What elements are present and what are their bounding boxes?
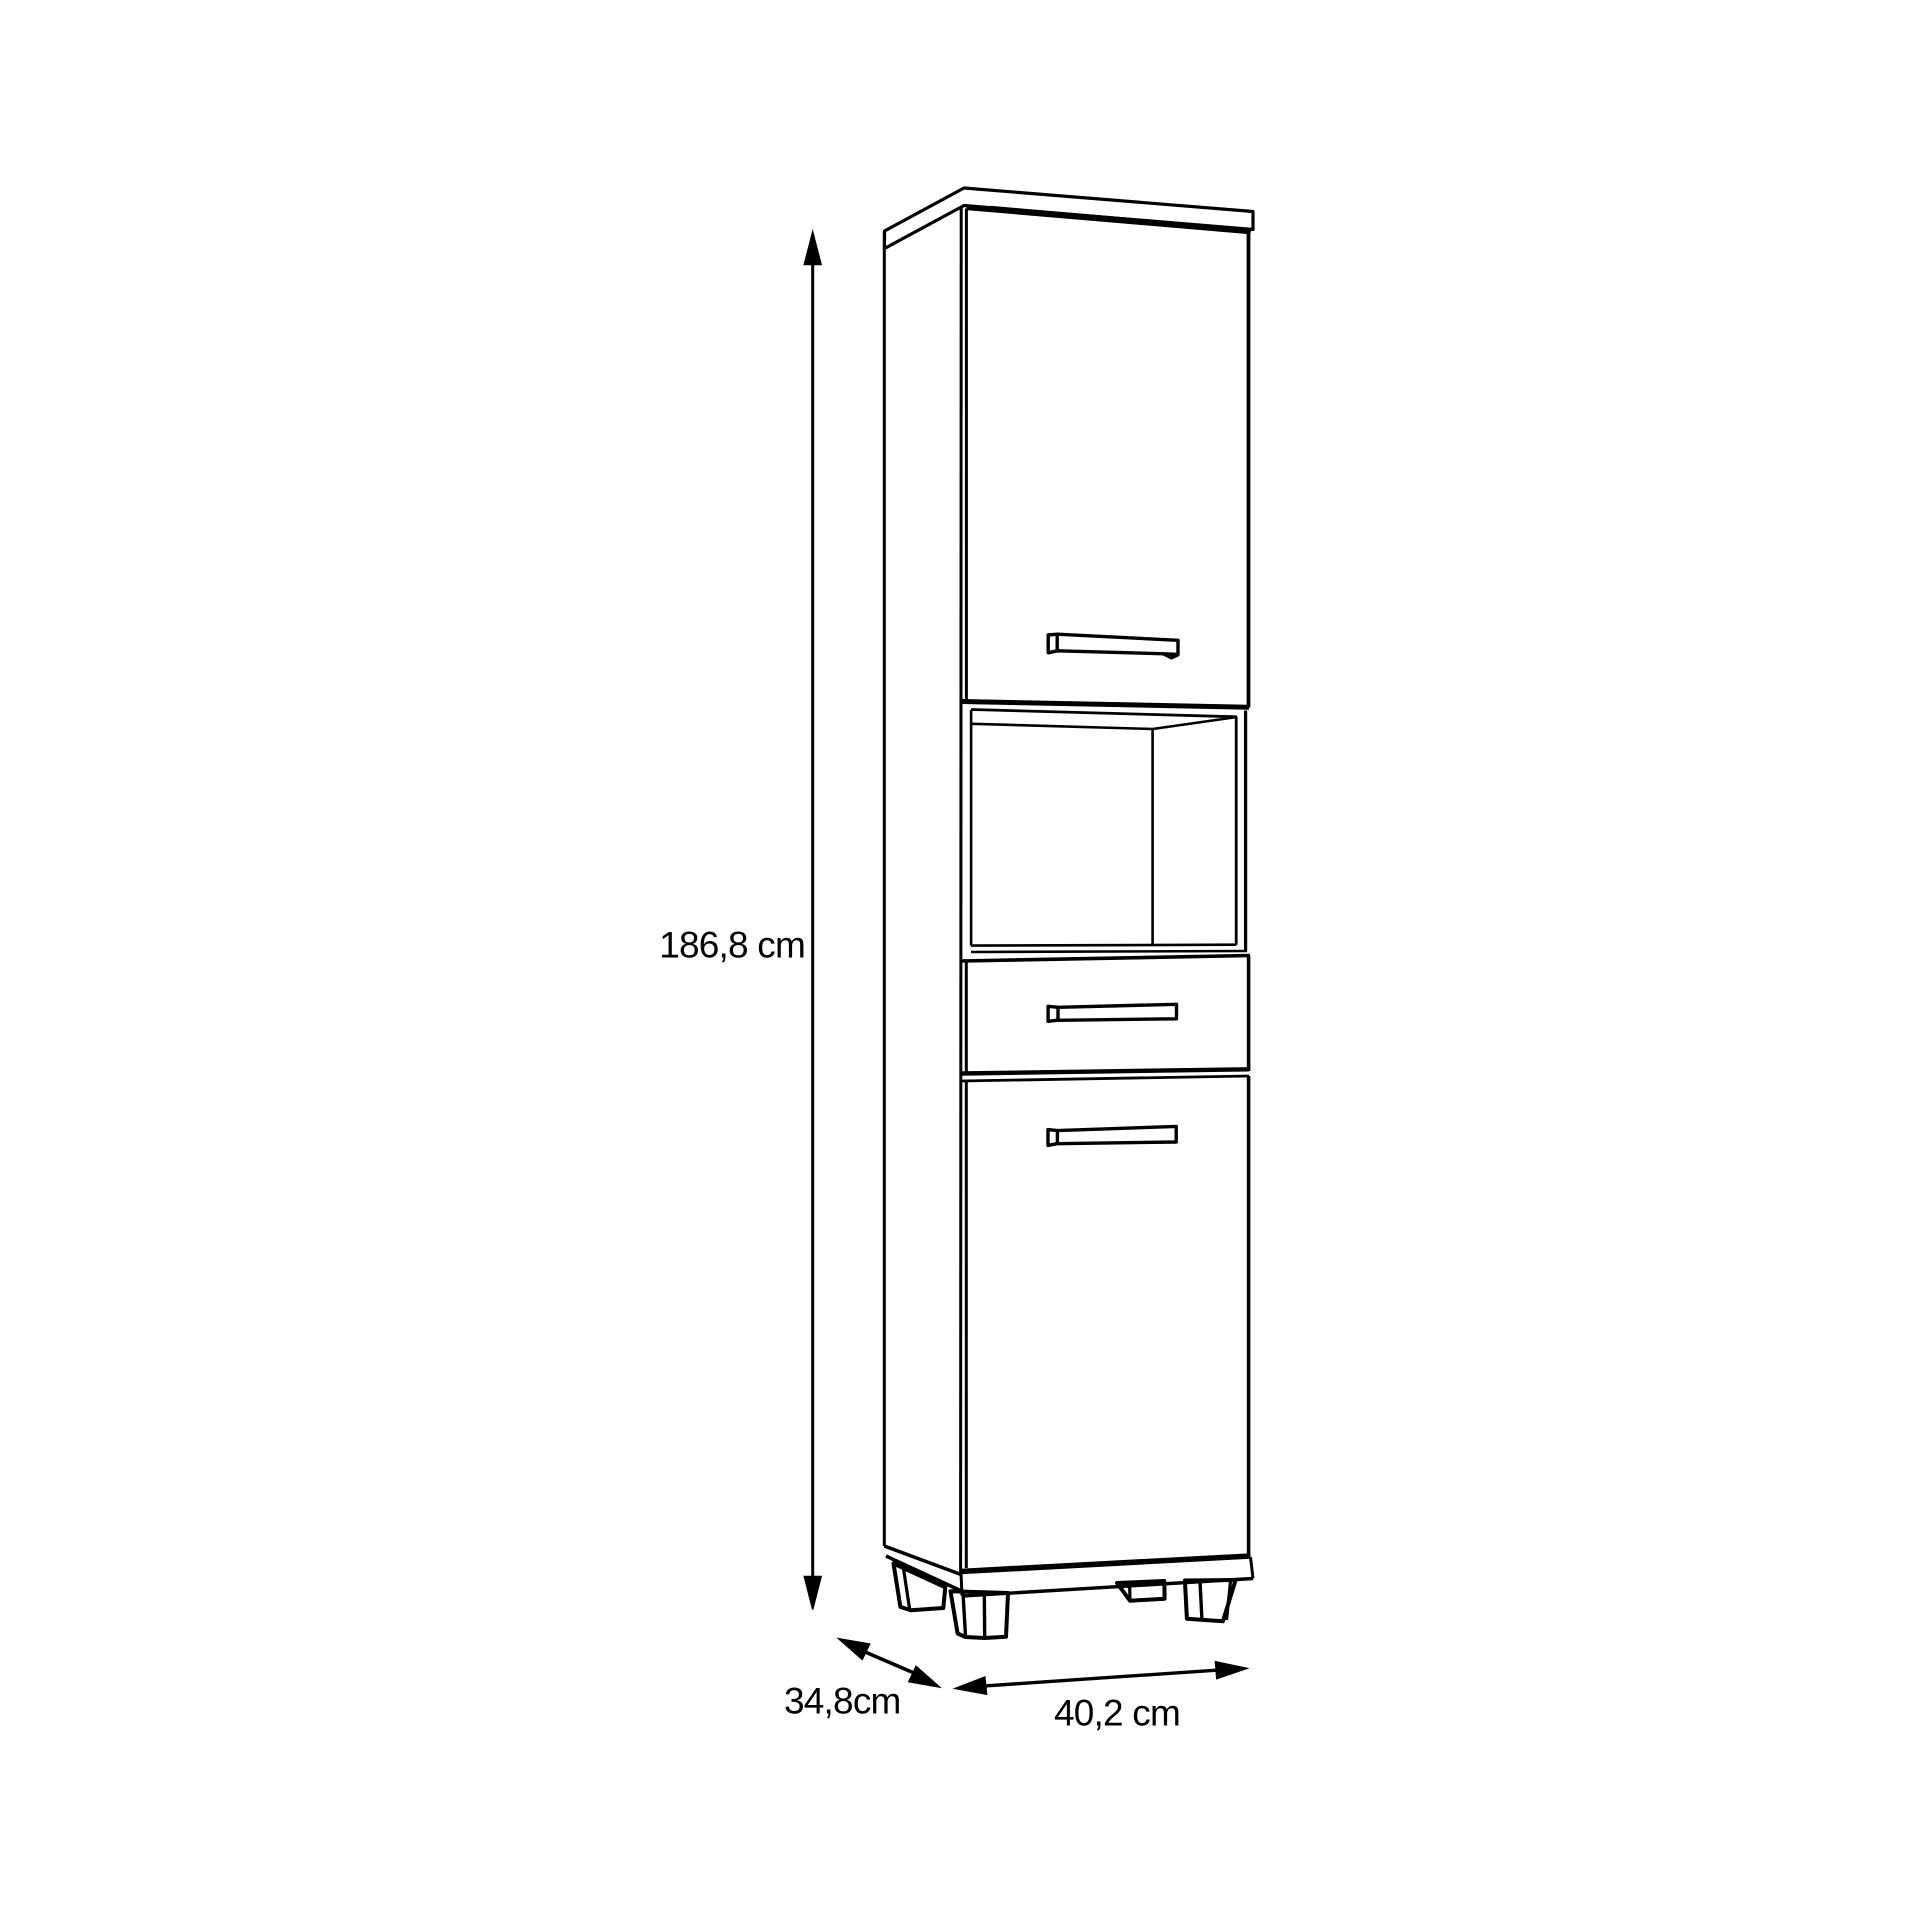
svg-text:186,8 cm: 186,8 cm [659,925,805,966]
svg-text:34,8cm: 34,8cm [784,1681,901,1722]
svg-text:40,2 cm: 40,2 cm [1054,1693,1180,1734]
